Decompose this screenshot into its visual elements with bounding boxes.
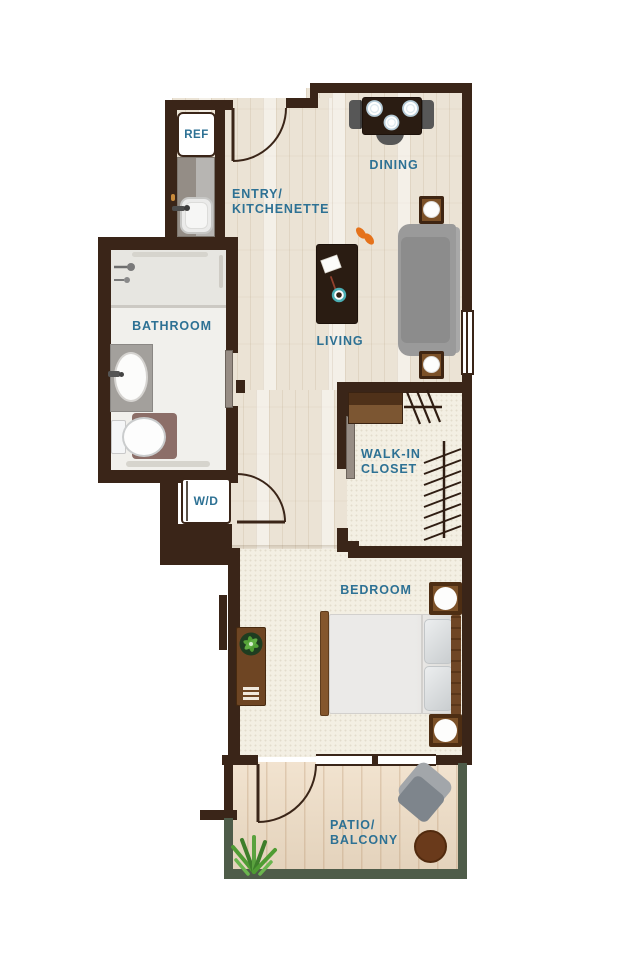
floor-plan: REF W/D (0, 0, 640, 958)
closet-label-line1: WALK-IN (361, 447, 421, 462)
patio-plant (233, 837, 275, 874)
closet-hangers-top (404, 390, 442, 424)
bathroom-label: BATHROOM (112, 319, 232, 334)
closet-hangers-right (424, 441, 461, 540)
patio-label-line2: BALCONY (330, 833, 398, 848)
wd-door-arc (237, 474, 285, 522)
entry-door-arc (233, 108, 286, 161)
patio-label-line1: PATIO/ (330, 818, 398, 833)
walk-in-closet-label: WALK-IN CLOSET (361, 447, 421, 476)
living-label: LIVING (313, 334, 367, 349)
closet-label-line2: CLOSET (361, 462, 421, 477)
entry-kitchenette-label: ENTRY/ KITCHENETTE (232, 187, 329, 216)
entry-label-line2: KITCHENETTE (232, 202, 329, 217)
patio-door-arc (258, 764, 316, 822)
shower-head-icon (114, 263, 135, 283)
bedroom-label: BEDROOM (336, 583, 416, 598)
dresser-plant (240, 633, 263, 656)
entry-label-line1: ENTRY/ (232, 187, 329, 202)
overlay-graphics (0, 0, 640, 958)
dining-label: DINING (362, 158, 426, 173)
patio-balcony-label: PATIO/ BALCONY (330, 818, 398, 847)
dining-plates (367, 101, 418, 130)
coffee-table-cup (333, 289, 345, 301)
slippers (354, 226, 376, 247)
coffee-table-paper (321, 255, 341, 273)
